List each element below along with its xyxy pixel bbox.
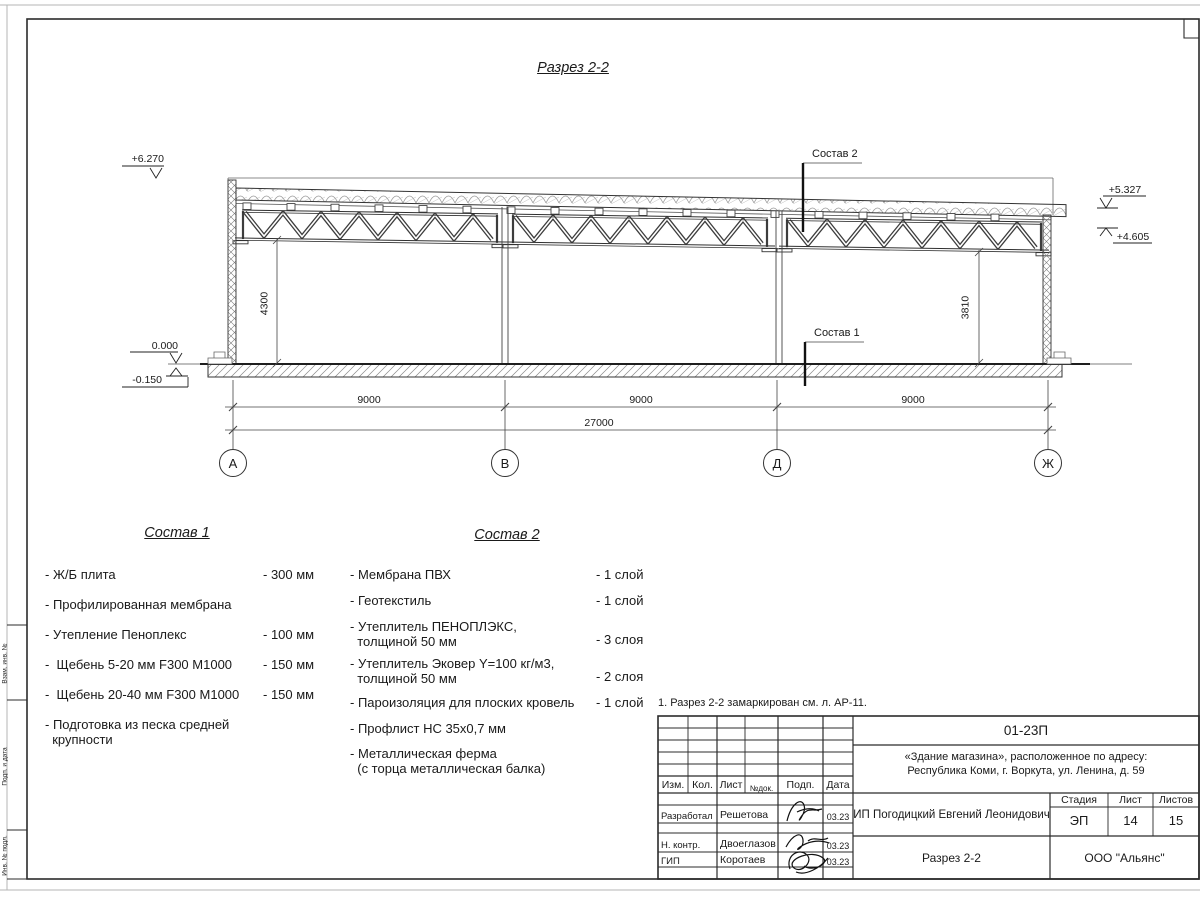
callout-sostav-1: Состав 1 bbox=[814, 327, 860, 340]
sostav1-value-4: - 150 мм bbox=[263, 657, 333, 672]
side-stamp-label-2: Подп. и дата bbox=[0, 732, 13, 802]
sostav1-item-5: - Щебень 20-40 мм F300 М1000 bbox=[45, 687, 275, 702]
tb-col-ndok: №док. bbox=[745, 781, 778, 796]
tb-name-1: Решетова bbox=[720, 808, 777, 823]
tb-col-data: Дата bbox=[823, 779, 853, 791]
tb-col-podp: Подп. bbox=[778, 779, 823, 791]
sostav1-item-2: - Профилированная мембрана bbox=[45, 597, 275, 612]
tb-name-2: Двоеглазов bbox=[720, 837, 777, 852]
dim-height-right: 3810 bbox=[959, 286, 974, 330]
tb-role-3: ГИП bbox=[661, 854, 716, 869]
elevation-top-left: +6.270 bbox=[120, 153, 164, 165]
tb-sheets-value: 15 bbox=[1153, 813, 1199, 828]
tb-date-3: 03.23 bbox=[823, 855, 853, 870]
sostav2-value-2: - 1 слой bbox=[596, 593, 660, 608]
dim-bay-2: 9000 bbox=[616, 394, 666, 406]
tb-name-3: Коротаев bbox=[720, 853, 777, 868]
side-stamp-label-3: Инв. № подл. bbox=[0, 821, 13, 891]
corner-stamp-box bbox=[1184, 19, 1199, 38]
tb-date-1: 03.23 bbox=[823, 810, 853, 825]
sostav2-heading: Состав 2 bbox=[470, 527, 544, 544]
tb-sheet-value: 14 bbox=[1108, 813, 1153, 828]
sostav2-item-2: - Геотекстиль bbox=[350, 593, 595, 608]
elevation-zero: 0.000 bbox=[134, 340, 178, 352]
mark-5327 bbox=[1097, 196, 1146, 208]
sostav2-item-7: - Металлическая ферма (с торца металличе… bbox=[350, 746, 600, 776]
grid-axis-b: В bbox=[491, 456, 519, 471]
dim-height-left: 4300 bbox=[258, 282, 273, 326]
height-dimensions bbox=[273, 236, 983, 367]
dim-bay-1: 9000 bbox=[344, 394, 394, 406]
tb-col-izm: Изм. bbox=[659, 779, 687, 791]
tb-client: ИП Погодицкий Евгений Леонидович bbox=[853, 808, 1050, 823]
sostav2-item-4: - Утеплитель Эковер Y=100 кг/м3, толщино… bbox=[350, 656, 600, 686]
sheet-frame bbox=[27, 19, 1199, 879]
sostav2-item-5: - Пароизоляция для плоских кровель bbox=[350, 695, 595, 710]
tb-sheets-label: Листов bbox=[1153, 794, 1199, 806]
grid-bubbles bbox=[220, 450, 1062, 477]
callout-sostav-2: Состав 2 bbox=[812, 148, 858, 161]
sostav1-heading: Состав 1 bbox=[141, 525, 213, 542]
left-wall bbox=[228, 180, 236, 364]
grid-axis-zh: Ж bbox=[1034, 456, 1062, 471]
tb-sheet-label: Лист bbox=[1108, 794, 1153, 806]
mark-0000 bbox=[130, 352, 182, 363]
sheet-note: 1. Разрез 2-2 замаркирован см. л. АР-11. bbox=[658, 697, 958, 710]
right-wall bbox=[1043, 215, 1051, 364]
tb-object-line2: Республика Коми, г. Воркута, ул. Ленина,… bbox=[853, 765, 1199, 778]
callout-leaders bbox=[803, 163, 864, 386]
sostav2-item-3: - Утеплитель ПЕНОПЛЭКС, толщиной 50 мм bbox=[350, 619, 595, 649]
sostav1-value-1: - 300 мм bbox=[263, 567, 333, 582]
sostav1-value-3: - 100 мм bbox=[263, 627, 333, 642]
elevation-below-zero: -0.150 bbox=[118, 374, 162, 386]
sostav2-value-4: - 2 слоя bbox=[596, 669, 660, 684]
sostav1-value-5: - 150 мм bbox=[263, 687, 333, 702]
page-title: Разрез 2-2 bbox=[536, 60, 610, 77]
tb-object-line1: «Здание магазина», расположенное по адре… bbox=[853, 751, 1199, 764]
elevation-truss-right: +4.605 bbox=[1111, 231, 1155, 243]
tb-sheet-name: Разрез 2-2 bbox=[853, 851, 1050, 866]
tb-doc-number: 01-23П bbox=[853, 723, 1199, 738]
sostav1-item-1: - Ж/Б плита bbox=[45, 567, 260, 582]
sostav2-value-1: - 1 слой bbox=[596, 567, 660, 582]
tb-date-2: 03.23 bbox=[823, 839, 853, 854]
side-stamp-label-1: Взам. инв. № bbox=[0, 629, 13, 699]
tb-col-list: Лист bbox=[717, 779, 745, 791]
tb-stage-label: Стадия bbox=[1050, 794, 1108, 806]
sostav1-item-3: - Утепление Пеноплекс bbox=[45, 627, 260, 642]
sostav2-item-1: - Мембрана ПВХ bbox=[350, 567, 595, 582]
tb-col-kol: Кол. bbox=[688, 779, 717, 791]
floor-slab bbox=[168, 352, 1132, 377]
sostav1-item-4: - Щебень 5-20 мм F300 М1000 bbox=[45, 657, 275, 672]
grid-axis-d: Д bbox=[763, 456, 791, 471]
tb-company: ООО "Альянс" bbox=[1050, 851, 1199, 866]
dim-total: 27000 bbox=[571, 417, 627, 429]
elevation-roof-right: +5.327 bbox=[1103, 184, 1147, 196]
dimension-lines bbox=[225, 380, 1056, 449]
sostav2-value-5: - 1 слой bbox=[596, 695, 660, 710]
sostav2-item-6: - Профлист НС 35х0,7 мм bbox=[350, 721, 595, 736]
drawing-sheet: Разрез 2-2 +6.270 0.000 -0.150 +5.327 +4… bbox=[0, 0, 1200, 900]
mark-6270 bbox=[122, 166, 164, 178]
sostav2-value-3: - 3 слоя bbox=[596, 632, 660, 647]
sostav1-item-6: - Подготовка из песка средней крупности bbox=[45, 717, 275, 747]
dim-bay-3: 9000 bbox=[888, 394, 938, 406]
grid-axis-a: А bbox=[219, 456, 247, 471]
tb-stage-value: ЭП bbox=[1050, 813, 1108, 828]
tb-role-1: Разработал bbox=[661, 809, 716, 824]
tb-role-2: Н. контр. bbox=[661, 838, 716, 853]
